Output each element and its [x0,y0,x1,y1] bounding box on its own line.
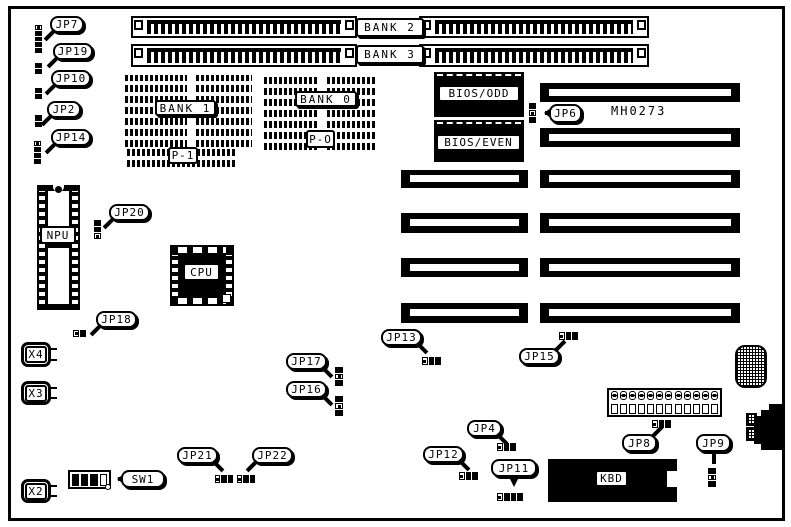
power-tab [711,391,718,400]
power-sq [629,404,636,414]
npu-text: NPU [47,229,70,242]
power-sq [611,404,618,414]
jumper-jp11 [496,492,524,502]
jumper-jp22 [236,474,256,484]
jp15-label: JP15 [524,350,555,363]
power-tab-row [611,391,718,400]
bank2-text: BANK 2 [364,21,416,34]
power-tab [620,391,627,400]
jumper-jp17 [334,366,344,387]
jumper-pin [429,357,435,365]
callout-jp22: JP22 [252,447,293,464]
jumper-pin [250,475,255,483]
simm-socket [131,44,357,67]
power-sq [638,404,645,414]
jp20-label: JP20 [114,206,145,219]
jumper-pin [35,88,42,93]
cpu-text: CPU [190,266,213,279]
jumper-pin [73,330,79,337]
power-tab [629,391,636,400]
isa-slot [401,170,528,188]
jumper-pin [335,367,343,373]
motherboard-diagram: BANK 2 BANK 3 BANK 1 P-1 BANK 0 P-O BIOS… [0,0,791,527]
power-sq [675,404,682,414]
simm-clip [637,20,646,30]
jumper-pin [466,472,472,480]
switch-pos [81,474,88,486]
jp16-label: JP16 [291,383,322,396]
jumper-jp14 [33,140,42,165]
simm-clip [134,20,143,30]
jumper-pin [94,233,101,239]
bank2-label: BANK 2 [356,18,424,37]
callout-jp12: JP12 [423,446,464,463]
jp17-label: JP17 [291,355,322,368]
simm-pins [435,48,633,63]
jumper-pin [335,374,343,380]
jp19-label: JP19 [58,45,89,58]
power-sq [684,404,691,414]
cpu-pins-bottom [178,298,226,304]
slot-key [410,175,519,182]
switch-pos [72,474,79,486]
jumper-pin [335,403,343,409]
din-connector-body [761,410,785,450]
isa-slot [401,213,528,233]
power-tab [638,391,645,400]
slot-key [549,264,731,271]
jumper-pin [422,357,428,365]
callout-jp13: JP13 [381,329,422,346]
jp13-label: JP13 [386,331,417,344]
jumper-pin [497,493,503,501]
power-tab [693,391,700,400]
slot-key [549,175,731,182]
jumper-jp9 [707,467,717,488]
isa-slot [401,258,528,277]
callout-jp15: JP15 [519,348,560,365]
isa-slot [540,258,740,277]
npu-window [48,248,69,304]
part-number: MH0273 [611,104,666,118]
cpu-label: CPU [183,263,220,281]
bank1-label: BANK 1 [155,100,216,116]
jumper-pin [511,493,517,501]
slot-key [410,264,519,271]
power-sq [711,404,718,414]
power-tab [675,391,682,400]
jp10-label: JP10 [56,72,87,85]
jp14-label: JP14 [56,131,87,144]
cpu-pins-left [172,255,178,296]
jumper-jp10 [34,87,43,100]
power-tab [656,391,663,400]
p0-label: P-O [306,130,335,148]
jumper-pin [566,332,572,340]
callout-jp16: JP16 [286,381,327,398]
jumper-pin [35,42,42,47]
jp22-label: JP22 [257,449,288,462]
bank3-text: BANK 3 [364,48,416,61]
callout-tail [712,450,716,464]
jumper-pin [472,472,478,480]
power-tab [665,391,672,400]
jumper-pin [517,493,523,501]
jumper-pin [94,220,101,226]
callout-tail [508,475,520,493]
callout-jp4: JP4 [467,420,502,437]
jumper-pin [572,332,578,340]
callout-jp7: JP7 [50,16,84,33]
jp6-label: JP6 [554,107,577,120]
jp18-label: JP18 [101,313,132,326]
jumper-pin [504,493,510,501]
din-pin-block [746,413,757,426]
jumper-pin [34,141,41,146]
jumper-pin [529,110,536,116]
isa-slot [540,128,740,147]
jumper-pin [708,468,716,474]
jumper-pin [335,396,343,402]
power-sq [656,404,663,414]
crystal-x3: X3 [21,381,51,405]
cpu-pins-right [226,255,232,296]
callout-jp18: JP18 [96,311,137,328]
jumper-pin [215,475,220,483]
jumper-jp21 [214,474,234,484]
slot-key [410,309,519,316]
bios-odd-label: BIOS/ODD [438,85,520,102]
p1-label: P-1 [168,147,198,164]
x3-label: X3 [25,385,46,402]
callout-jp17: JP17 [286,353,327,370]
simm-pins [147,48,341,63]
power-pin-row [611,404,718,414]
npu-pins-left [39,191,45,304]
jumper-pin [237,475,242,483]
slot-key [549,309,731,316]
kbd-notch [667,471,677,487]
jumper-pin [335,380,343,386]
jumper-pin [243,475,248,483]
slot-key [410,219,519,226]
capacitor [735,345,767,388]
kbd-text: KBD [600,472,623,485]
power-tab [647,391,654,400]
simm-socket [419,16,649,38]
jumper-pin [529,103,536,109]
simm-socket [131,16,357,38]
jumper-pin [34,147,41,152]
jumper-pin [35,69,42,74]
jumper-jp19 [34,62,43,75]
jumper-jp16 [334,395,344,417]
jumper-pin [35,31,42,36]
callout-jp21: JP21 [177,447,218,464]
jumper-pin [35,25,42,30]
bank0-text: BANK 0 [300,93,352,106]
jumper-jp7 [34,24,43,54]
din-pin-block [746,427,757,441]
npu-label: NPU [40,226,76,244]
jumper-jp12 [458,471,479,481]
jp12-label: JP12 [428,448,459,461]
kbd-label: KBD [595,470,628,487]
jp7-label: JP7 [56,18,79,31]
jumper-pin [529,117,536,123]
power-tab [611,391,618,400]
part-number-text: MH0273 [611,104,666,118]
p1-text: P-1 [172,149,195,162]
bios-odd-text: BIOS/ODD [449,87,510,100]
power-tab [684,391,691,400]
slot-key [549,89,731,96]
jumper-pin [34,153,41,158]
jp9-label: JP9 [702,437,725,450]
bank1-text: BANK 1 [160,102,212,115]
jumper-jp20 [93,219,102,240]
power-sq [665,404,672,414]
jumper-pin [665,420,671,428]
simm-clip [134,48,143,58]
crystal-x2: X2 [21,479,51,503]
jumper-pin [335,410,343,416]
power-sq [693,404,700,414]
jumper-pin [708,481,716,487]
jumper-pin [35,63,42,68]
simm-pins [435,20,633,34]
slot-key [549,134,731,141]
npu-window [48,191,69,228]
simm-clip [345,48,354,58]
jumper-pin [708,475,716,481]
simm-clip [637,48,646,58]
jumper-pin [652,420,658,428]
jumper-pin [221,475,226,483]
power-connector [607,388,722,417]
jumper-pin [228,475,233,483]
jumper-jp13 [421,356,442,366]
callout-jp9: JP9 [696,434,731,452]
cpu-pin1-marker [222,294,231,303]
jp8-label: JP8 [628,437,651,450]
callout-jp11: JP11 [491,459,537,477]
jp21-label: JP21 [182,449,213,462]
jumper-pin [34,159,41,164]
jp2-label: JP2 [53,103,76,116]
callout-jp10: JP10 [51,70,91,87]
jumper-jp6 [528,102,537,124]
slot-key [549,219,731,226]
callout-sw1: SW1 [121,470,165,488]
npu-notch [55,186,62,193]
power-sq [620,404,627,414]
npu-socket [37,185,80,310]
jumper-pin [497,443,503,451]
dip-switch-sw1 [68,470,111,489]
jp11-label: JP11 [499,462,530,475]
jumper-pin [35,94,42,99]
callout-jp14: JP14 [51,129,91,146]
power-tab [702,391,709,400]
jumper-pin [35,115,42,121]
bios-even-text: BIOS/EVEN [444,136,513,149]
power-sq [702,404,709,414]
jumper-pin [80,330,86,337]
jp4-label: JP4 [473,422,496,435]
power-sq [647,404,654,414]
callout-jp19: JP19 [53,43,93,60]
p0-text: P-O [309,133,332,146]
jumper-pin [510,443,516,451]
sw1-label: SW1 [132,473,155,486]
isa-slot [540,213,740,233]
simm-clip [345,20,354,30]
jumper-pin [94,227,101,233]
jumper-pin [35,48,42,53]
isa-slot [401,303,528,323]
jumper-pin [559,332,565,340]
callout-jp6: JP6 [549,104,582,123]
npu-pins-right [72,191,78,304]
callout-jp2: JP2 [47,101,81,118]
switch-pos [90,474,97,486]
simm-pins [147,20,341,34]
simm-socket [419,44,649,67]
jumper-pin [435,357,441,365]
jumper-pin [35,37,42,42]
bank3-label: BANK 3 [356,45,424,64]
callout-jp20: JP20 [109,204,150,221]
bank0-label: BANK 0 [295,91,357,107]
crystal-x4: X4 [21,342,51,367]
jumper-jp15 [558,331,579,341]
cpu-pins-top [178,247,226,253]
jumper-jp18 [72,329,87,338]
bios-even-label: BIOS/EVEN [436,134,521,151]
isa-slot [540,170,740,188]
isa-slot [540,83,740,102]
isa-slot [540,303,740,323]
x2-label: X2 [25,483,46,500]
jumper-pin [459,472,465,480]
callout-jp8: JP8 [622,434,657,452]
x4-label: X4 [25,346,46,363]
